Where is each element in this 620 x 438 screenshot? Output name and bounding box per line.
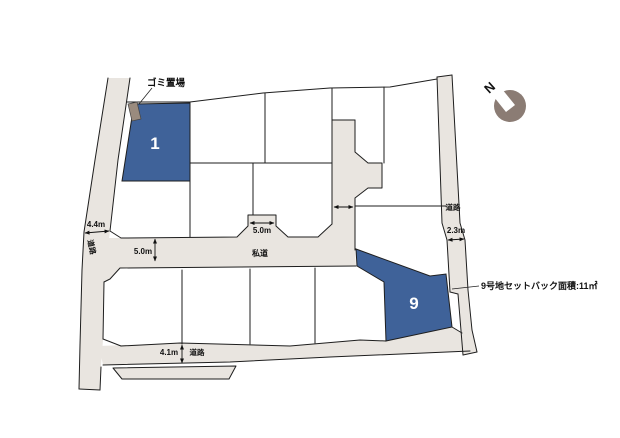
setback-note: 9号地セットバック面積:11㎡ [481, 280, 598, 291]
dim-left-road-width: 4.4m [87, 220, 105, 229]
plat-map: 1 9 ゴミ置場 N 道路 道路 道路 私道 4.4m 5.0m 5.0m 2.… [0, 0, 620, 438]
bottom-road-label: 道路 [190, 347, 205, 357]
lot-9: 9 [356, 249, 452, 341]
setback-annotation: 9号地セットバック面積:11㎡ [452, 280, 598, 291]
dim-stub-width: 5.0m [253, 226, 271, 235]
right-road-label: 道路 [446, 202, 461, 212]
dim-bottom-road-width: 4.1m [160, 348, 178, 357]
left-road-flare-top [110, 231, 121, 238]
garbage-label: ゴミ置場 [147, 77, 186, 89]
dim-right-road-width: 2.3m [447, 226, 465, 235]
lot-9-shape [356, 249, 452, 341]
lot-1-number: 1 [150, 134, 159, 153]
lot-9-number: 9 [409, 294, 418, 313]
private-road-top-edge [121, 215, 332, 238]
north-label: N [481, 79, 498, 96]
plat-map-svg: 1 9 ゴミ置場 N 道路 道路 道路 私道 4.4m 5.0m 5.0m 2.… [0, 0, 620, 438]
north-compass: N [481, 79, 526, 122]
left-road-flare-bottom [103, 339, 121, 346]
dim-private-road-width: 5.0m [134, 247, 152, 256]
private-road-bottom-edge [104, 266, 356, 282]
left-road [79, 78, 130, 390]
private-road-label: 私道 [251, 248, 268, 258]
